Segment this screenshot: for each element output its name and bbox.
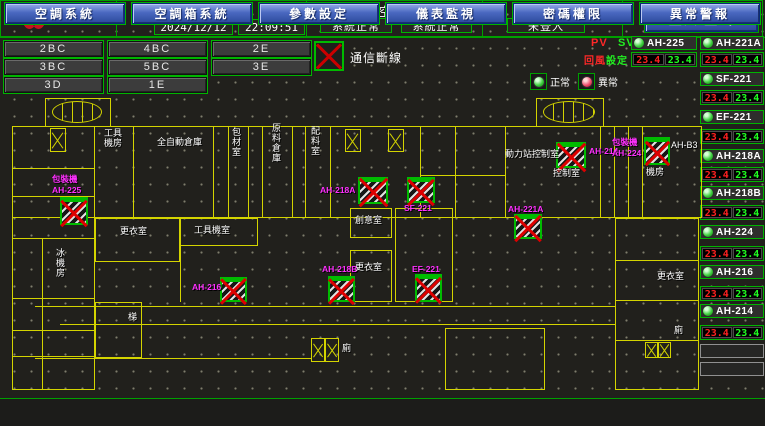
- comm-offline-icon: [314, 41, 344, 71]
- equipment-name: AH-218A: [716, 151, 761, 162]
- equipment-sf-221[interactable]: SF-221: [700, 72, 764, 86]
- wall: [600, 126, 601, 218]
- wall: [305, 126, 306, 218]
- status-led-icon: [703, 112, 713, 122]
- stairs-icon: [311, 338, 325, 362]
- wall: [330, 126, 331, 218]
- pv-value: 23.4: [702, 131, 732, 142]
- readout-sf-221: 23.4 23.4: [700, 90, 764, 105]
- floor-button-2e[interactable]: 2E: [212, 41, 311, 57]
- floor-button-1e[interactable]: 1E: [108, 77, 207, 93]
- equipment-name: AH-225: [647, 38, 684, 49]
- unit-label: AH-216: [192, 282, 221, 292]
- sv-value: 23.4: [733, 92, 763, 103]
- unit-box-ef-221[interactable]: [415, 274, 442, 302]
- unit-label: AH-218B: [322, 264, 357, 274]
- equipment-name: EF-221: [716, 112, 752, 123]
- equipment-name: AH-216: [716, 267, 753, 278]
- room-label: 動力站控制室: [505, 149, 559, 159]
- unit-label: EF-221: [412, 264, 440, 274]
- room-label: 控制室: [553, 168, 580, 178]
- red-led-icon: [582, 77, 592, 87]
- sv-value: 23.4: [665, 54, 696, 65]
- floor-button-3e[interactable]: 3E: [212, 59, 311, 75]
- hmi-screen: 宏亞食品 HUNYA FOODS 系統時間 2024/12/12 22:09:5…: [0, 0, 765, 426]
- room-label: 廁: [674, 325, 683, 335]
- status-led-icon: [703, 306, 713, 316]
- readout-ah-224: 23.4 23.4: [700, 246, 764, 261]
- status-led-icon: [703, 38, 713, 48]
- status-led-icon: [703, 267, 713, 277]
- room-label: 機房: [646, 167, 664, 177]
- unit-label: 包裝機: [52, 174, 78, 184]
- unit-label: AH-221A: [508, 204, 543, 214]
- wall: [180, 218, 181, 302]
- equipment-ah-218b[interactable]: AH-218B: [700, 186, 764, 200]
- pv-value: 23.4: [702, 288, 732, 299]
- equipment-ah-214[interactable]: AH-214: [700, 304, 764, 318]
- nav-button-parameters[interactable]: 參數設定: [259, 3, 379, 24]
- readout-ef-221: 23.4 23.4: [700, 129, 764, 144]
- legend-normal-label: 正常: [550, 74, 570, 89]
- room-label: 配料室: [310, 126, 320, 156]
- empty-equipment-slot: [700, 344, 764, 358]
- nav-button-alarm[interactable]: 異常警報: [640, 3, 760, 24]
- sv-value: 23.4: [733, 327, 763, 338]
- legend-abnormal: 異常: [578, 73, 618, 90]
- room-label: 梯: [128, 312, 137, 322]
- legend-abnormal-label: 異常: [598, 74, 618, 89]
- pv-value: 23.4: [702, 169, 732, 180]
- nav-button-meter-monitor[interactable]: 儀表監視: [386, 3, 506, 24]
- pv-value: 23.4: [633, 54, 664, 65]
- wall: [445, 328, 545, 390]
- wall: [42, 238, 43, 390]
- equipment-ah-216[interactable]: AH-216: [700, 265, 764, 279]
- unit-box-ah-218a[interactable]: [358, 177, 388, 204]
- escalator-icon: [52, 101, 102, 123]
- floor-button-5bc[interactable]: 5BC: [108, 59, 207, 75]
- unit-label: AH-225: [52, 185, 81, 195]
- unit-box-sf-221[interactable]: [407, 177, 435, 203]
- unit-box-ah-224[interactable]: [644, 137, 670, 165]
- wall: [615, 340, 699, 341]
- unit-label: SF-221: [404, 203, 432, 213]
- wall: [615, 218, 699, 390]
- pv-value: 23.4: [702, 92, 732, 103]
- wall: [35, 358, 311, 359]
- sv-value: 23.4: [733, 248, 763, 259]
- pv-value: 23.4: [702, 327, 732, 338]
- wall: [95, 218, 180, 262]
- equipment-name: AH-224: [716, 227, 753, 238]
- equipment-ah-225[interactable]: AH-225: [631, 36, 697, 50]
- pv-desc: 回風: [584, 52, 606, 67]
- wall: [262, 126, 263, 218]
- equipment-name: SF-221: [716, 74, 752, 85]
- room-label: 創意室: [355, 215, 382, 225]
- room-label: 更衣室: [657, 271, 684, 281]
- status-led-icon: [634, 38, 644, 48]
- readout-ah-216: 23.4 23.4: [700, 286, 764, 301]
- readout-ah-225: 23.4 23.4: [631, 52, 697, 67]
- floor-button-3bc[interactable]: 3BC: [4, 59, 103, 75]
- floor-button-4bc[interactable]: 4BC: [108, 41, 207, 57]
- room-label: 原料倉庫: [271, 123, 281, 163]
- wall: [350, 250, 392, 302]
- wall: [615, 300, 699, 301]
- floor-button-2bc[interactable]: 2BC: [4, 41, 103, 57]
- room-label: 全自動倉庫: [157, 137, 202, 147]
- unit-box-ah-221a[interactable]: [514, 214, 542, 239]
- readout-ah-218a: 23.4 23.4: [700, 167, 764, 182]
- wall: [248, 126, 249, 218]
- bottom-nav: [0, 398, 765, 426]
- nav-button-password-auth[interactable]: 密碼權限: [513, 3, 633, 24]
- pv-value: 23.4: [702, 248, 732, 259]
- status-led-icon: [703, 74, 713, 84]
- wall: [455, 126, 456, 218]
- wall: [615, 260, 699, 261]
- pv-value: 23.4: [702, 207, 732, 218]
- sv-value: 23.4: [733, 207, 763, 218]
- unit-label: AH-224: [612, 148, 641, 158]
- wall: [420, 175, 505, 176]
- wall: [12, 298, 95, 299]
- sv-desc: 設定: [606, 52, 628, 67]
- floor-button-3d[interactable]: 3D: [4, 77, 103, 93]
- unit-label: AH-218A: [320, 185, 355, 195]
- equipment-name: AH-218B: [716, 188, 761, 199]
- equipment-ah-218a[interactable]: AH-218A: [700, 149, 764, 163]
- damper-x-icon: [388, 129, 404, 152]
- green-led-icon: [534, 77, 544, 87]
- room-label: 更衣室: [355, 262, 382, 272]
- stairs-icon: [325, 338, 339, 362]
- room-label: 廁: [342, 343, 351, 353]
- sv-value: 23.4: [733, 131, 763, 142]
- readout-ah-221a: 23.4 23.4: [700, 52, 764, 67]
- room-label: 工具機房: [101, 128, 125, 148]
- comm-offline-label: 通信斷線: [350, 49, 402, 66]
- wall: [292, 126, 293, 218]
- damper-x-icon: [345, 129, 361, 152]
- sv-value: 23.4: [733, 169, 763, 180]
- unit-box-ah-216[interactable]: [220, 277, 247, 302]
- unit-box-ah-214[interactable]: [556, 142, 586, 168]
- unit-box-ah-218b[interactable]: [328, 276, 355, 302]
- wall: [228, 126, 229, 218]
- legend-normal: 正常: [530, 73, 570, 90]
- readout-ah-214: 23.4 23.4: [700, 325, 764, 340]
- pv-value: 23.4: [702, 54, 732, 65]
- wall: [133, 126, 134, 218]
- normal-led-icon: [530, 73, 547, 90]
- equipment-name: AH-221A: [716, 38, 761, 49]
- empty-equipment-slot: [700, 362, 764, 376]
- room-label: 更衣室: [120, 226, 147, 236]
- unit-box-ah-225[interactable]: [60, 197, 88, 225]
- status-led-icon: [703, 188, 713, 198]
- equipment-ef-221[interactable]: EF-221: [700, 110, 764, 124]
- equipment-ah-224[interactable]: AH-224: [700, 225, 764, 239]
- readout-ah-218b: 23.4 23.4: [700, 205, 764, 220]
- status-led-icon: [703, 151, 713, 161]
- wall: [12, 238, 95, 239]
- escalator-icon: [543, 101, 595, 123]
- room-label: 包材室: [231, 127, 241, 157]
- wall: [12, 168, 95, 169]
- wall: [60, 324, 615, 325]
- room-label: 工具機室: [194, 225, 230, 235]
- status-led-icon: [703, 227, 713, 237]
- wall: [642, 126, 643, 218]
- stairs-icon: [658, 342, 671, 358]
- unit-label: 包裝機: [612, 137, 638, 147]
- wall: [12, 126, 95, 390]
- sv-value: 23.4: [733, 288, 763, 299]
- abnormal-led-icon: [578, 73, 595, 90]
- room-label: AH-B3: [671, 140, 698, 150]
- wall: [95, 302, 142, 358]
- damper-x-icon: [50, 128, 66, 152]
- stairs-icon: [645, 342, 658, 358]
- wall: [505, 126, 506, 218]
- equipment-name: AH-214: [716, 306, 753, 317]
- wall: [12, 330, 95, 331]
- pv-header: PV: [591, 37, 608, 49]
- nav-button-hvac-system[interactable]: 空調系統: [5, 3, 125, 24]
- wall: [12, 356, 95, 357]
- wall: [213, 126, 214, 218]
- equipment-ah-221a[interactable]: AH-221A: [700, 36, 764, 50]
- nav-button-ahu-system[interactable]: 空調箱系統: [132, 3, 252, 24]
- room-label: 冰機房: [55, 248, 65, 278]
- sv-value: 23.4: [733, 54, 763, 65]
